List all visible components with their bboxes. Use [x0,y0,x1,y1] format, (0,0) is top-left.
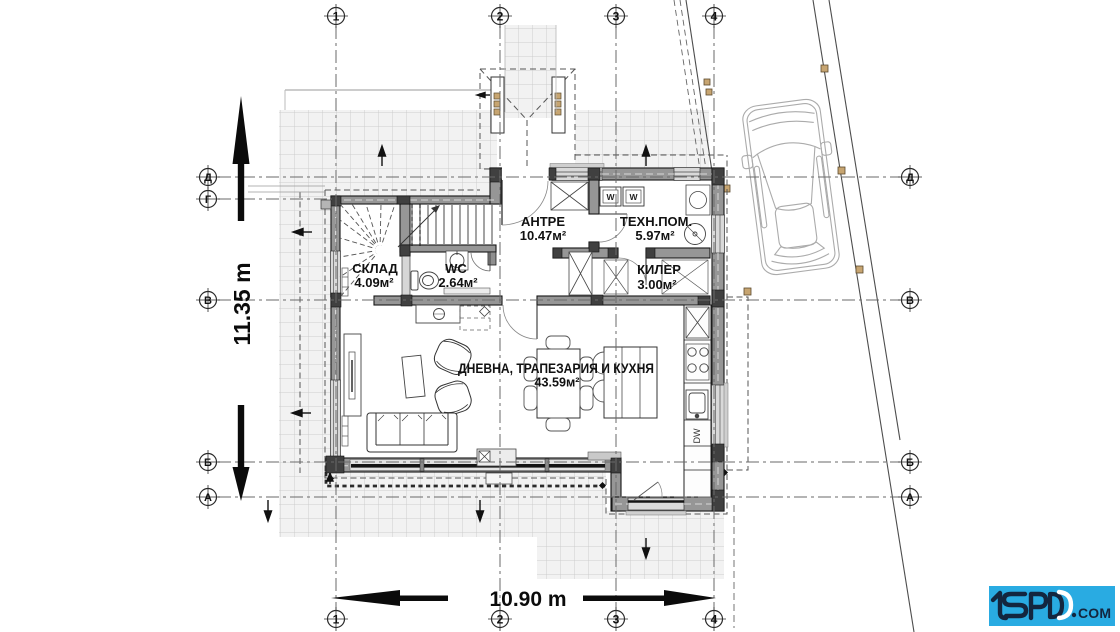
svg-text:АНТРЕ: АНТРЕ [521,214,565,229]
svg-text:1: 1 [333,613,340,627]
svg-text:2.64м²: 2.64м² [438,275,478,290]
svg-text:3.00м²: 3.00м² [637,277,677,292]
svg-text:СКЛАД: СКЛАД [352,261,398,276]
svg-text:КИЛЕР: КИЛЕР [637,262,681,277]
svg-text:Д: Д [906,172,914,184]
svg-text:А: А [906,492,914,504]
svg-text:Б: Б [906,457,914,469]
svg-text:WC: WC [445,261,467,276]
svg-text:3: 3 [613,613,620,627]
svg-text:В: В [906,295,914,307]
svg-text:Д: Д [204,172,212,184]
svg-text:В: В [204,295,212,307]
svg-text:10.47м²: 10.47м² [520,228,567,243]
svg-text:DW: DW [692,428,702,443]
svg-text:W: W [629,192,638,202]
svg-text:2: 2 [497,10,504,24]
svg-text:1: 1 [333,10,340,24]
svg-text:Г: Г [205,194,212,206]
svg-text:11.35 m: 11.35 m [229,262,255,345]
svg-text:2: 2 [497,613,504,627]
svg-text:4: 4 [711,613,718,627]
svg-text:Б: Б [204,457,212,469]
svg-text:5.97м²: 5.97м² [635,228,675,243]
svg-text:43.59м²: 43.59м² [535,375,581,390]
svg-text:ТЕХН.ПОМ.: ТЕХН.ПОМ. [620,214,692,229]
svg-text:4: 4 [711,10,718,24]
svg-text:4.09м²: 4.09м² [354,275,394,290]
svg-text:А: А [204,492,212,504]
svg-text:10.90 m: 10.90 m [489,588,566,611]
svg-text:3: 3 [613,10,620,24]
svg-text:W: W [606,192,615,202]
svg-text:COM: COM [1078,605,1111,621]
